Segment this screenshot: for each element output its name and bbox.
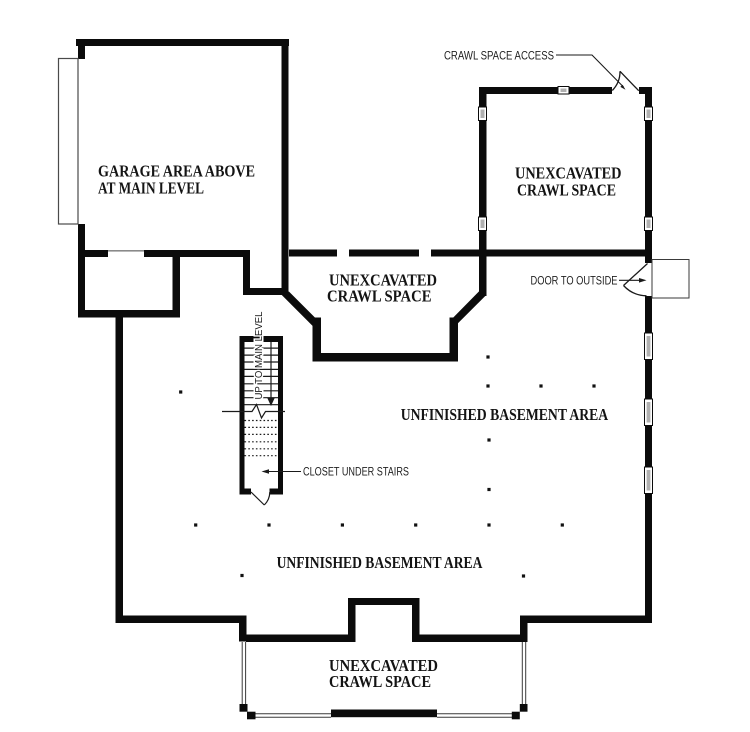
svg-text:CRAWL SPACE: CRAWL SPACE — [329, 672, 431, 691]
svg-text:CRAWL SPACE ACCESS: CRAWL SPACE ACCESS — [444, 49, 554, 63]
svg-text:UP TO MAIN LEVEL: UP TO MAIN LEVEL — [253, 311, 265, 399]
svg-text:CRAWL SPACE: CRAWL SPACE — [327, 287, 432, 306]
svg-text:CLOSET UNDER STAIRS: CLOSET UNDER STAIRS — [303, 467, 409, 479]
svg-text:AT MAIN LEVEL: AT MAIN LEVEL — [98, 179, 204, 198]
svg-text:UNFINISHED BASEMENT AREA: UNFINISHED BASEMENT AREA — [401, 405, 609, 424]
svg-text:CRAWL SPACE: CRAWL SPACE — [517, 181, 616, 200]
svg-text:DOOR TO OUTSIDE: DOOR TO OUTSIDE — [531, 274, 618, 288]
svg-text:UNFINISHED BASEMENT AREA: UNFINISHED BASEMENT AREA — [277, 553, 483, 572]
